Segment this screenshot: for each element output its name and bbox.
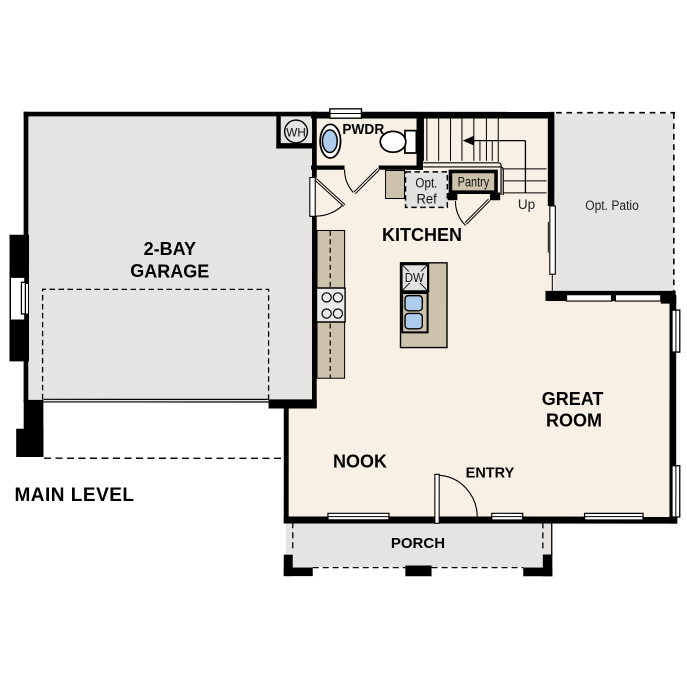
svg-text:Opt.: Opt. xyxy=(415,176,437,191)
svg-text:NOOK: NOOK xyxy=(333,451,387,471)
svg-text:Up: Up xyxy=(518,197,535,212)
svg-text:WH: WH xyxy=(286,125,306,139)
svg-text:ENTRY: ENTRY xyxy=(466,466,515,482)
svg-text:Ref: Ref xyxy=(417,192,437,207)
svg-text:PORCH: PORCH xyxy=(391,535,445,552)
svg-text:KITCHEN: KITCHEN xyxy=(382,225,462,245)
svg-text:GREAT: GREAT xyxy=(542,389,604,409)
svg-text:Opt. Patio: Opt. Patio xyxy=(585,198,639,213)
svg-text:GARAGE: GARAGE xyxy=(130,261,209,281)
svg-text:MAIN LEVEL: MAIN LEVEL xyxy=(14,485,134,506)
svg-text:PWDR: PWDR xyxy=(342,122,384,138)
svg-text:Pantry: Pantry xyxy=(458,175,490,190)
svg-text:DW: DW xyxy=(405,270,425,285)
svg-text:2-BAY: 2-BAY xyxy=(144,239,196,259)
svg-text:ROOM: ROOM xyxy=(546,411,602,431)
